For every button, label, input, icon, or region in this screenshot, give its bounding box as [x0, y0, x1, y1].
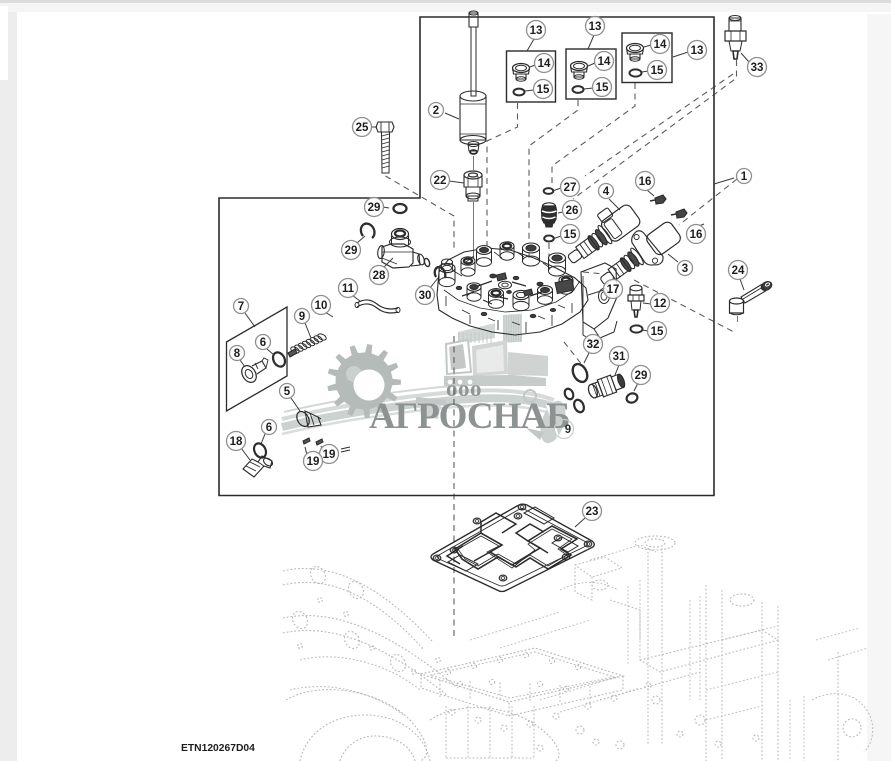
svg-text:32: 32: [587, 339, 600, 351]
svg-text:14: 14: [538, 58, 551, 70]
svg-text:15: 15: [651, 65, 664, 77]
svg-text:7: 7: [238, 301, 244, 313]
svg-text:16: 16: [639, 176, 652, 188]
svg-text:2: 2: [433, 105, 439, 117]
svg-text:АГРОСНАБ: АГРОСНАБ: [369, 396, 570, 437]
svg-text:29: 29: [635, 370, 648, 382]
svg-text:16: 16: [690, 229, 703, 241]
svg-text:26: 26: [566, 205, 579, 217]
svg-text:15: 15: [537, 84, 550, 96]
svg-text:25: 25: [356, 122, 369, 134]
svg-text:15: 15: [564, 229, 577, 241]
svg-text:15: 15: [596, 82, 609, 94]
svg-text:13: 13: [589, 21, 602, 33]
svg-text:5: 5: [284, 386, 291, 398]
svg-text:12: 12: [654, 298, 667, 310]
svg-text:19: 19: [307, 456, 320, 468]
svg-text:23: 23: [586, 506, 599, 518]
svg-text:6: 6: [266, 422, 272, 434]
svg-text:28: 28: [373, 270, 386, 282]
svg-text:11: 11: [342, 283, 355, 295]
svg-text:27: 27: [564, 182, 577, 194]
svg-text:24: 24: [732, 265, 745, 277]
svg-text:17: 17: [607, 284, 620, 296]
svg-text:13: 13: [691, 45, 704, 57]
svg-text:33: 33: [751, 62, 764, 74]
svg-text:8: 8: [234, 348, 241, 360]
svg-text:30: 30: [419, 290, 432, 302]
svg-text:3: 3: [682, 263, 688, 275]
svg-text:9: 9: [565, 424, 571, 436]
svg-text:ETN120267D04: ETN120267D04: [181, 743, 255, 754]
svg-text:4: 4: [603, 186, 610, 198]
svg-text:22: 22: [434, 175, 447, 187]
svg-text:13: 13: [530, 25, 543, 37]
svg-text:10: 10: [315, 300, 328, 312]
svg-text:29: 29: [368, 202, 381, 214]
svg-text:14: 14: [598, 56, 611, 68]
svg-text:15: 15: [651, 326, 664, 338]
svg-text:29: 29: [345, 245, 358, 257]
svg-text:1: 1: [741, 171, 748, 183]
svg-text:31: 31: [613, 351, 626, 363]
svg-text:18: 18: [230, 436, 243, 448]
svg-text:14: 14: [654, 39, 667, 51]
svg-text:6: 6: [260, 337, 266, 349]
svg-text:19: 19: [323, 449, 336, 461]
svg-text:9: 9: [299, 311, 305, 323]
